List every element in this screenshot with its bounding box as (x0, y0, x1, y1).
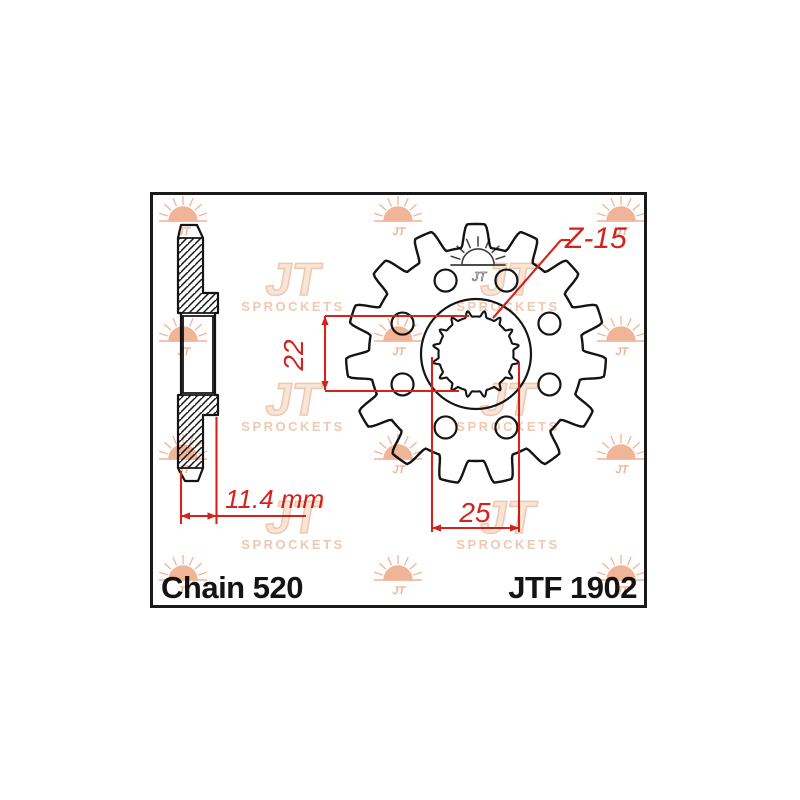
dim-bore-height-label: 22 (278, 339, 309, 372)
lightening-hole (538, 373, 560, 395)
lightening-hole (538, 313, 560, 335)
dim-tooth-count-label: Z-15 (564, 222, 627, 255)
sprocket-front-view (346, 224, 606, 483)
drawing-canvas: 22 25 11.4 mm Z-15 Chain 520 JTF 1902 (153, 195, 644, 605)
page: 22 25 11.4 mm Z-15 Chain 520 JTF 1902 JT… (0, 0, 800, 800)
lightening-hole (392, 373, 414, 395)
chain-size-label: Chain 520 (161, 570, 303, 605)
lightening-hole (495, 416, 517, 438)
lightening-hole (435, 416, 457, 438)
hatch-region (178, 238, 218, 313)
drawing-frame: 22 25 11.4 mm Z-15 Chain 520 JTF 1902 JT… (150, 192, 647, 608)
part-number-label: JTF 1902 (508, 570, 637, 605)
dim-hub-width-label: 11.4 mm (225, 484, 324, 514)
dim-bore-diameter-label: 25 (458, 497, 491, 528)
lightening-hole (495, 270, 517, 292)
hatch-region (178, 395, 218, 468)
sprocket-side-view (178, 225, 218, 481)
lightening-hole (435, 270, 457, 292)
